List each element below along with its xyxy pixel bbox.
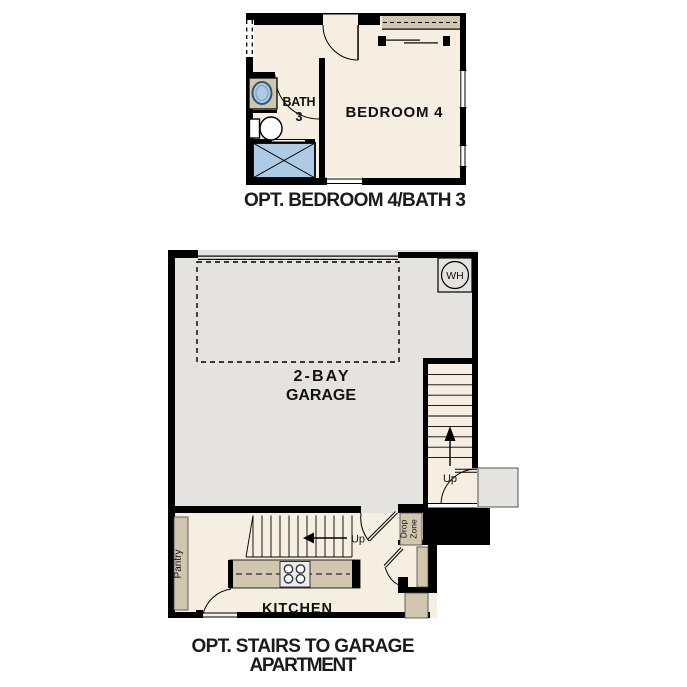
- drop-zone: Drop Zone: [399, 513, 423, 545]
- floor-plan-canvas: BATH 3 BEDROOM 4 OPT. BEDROOM 4/BATH 3 W…: [0, 0, 687, 687]
- kitchen-label: KITCHEN: [262, 601, 332, 617]
- garage-label-line2: GARAGE: [286, 387, 356, 404]
- caption-opt-stairs-line2: APARTMENT: [250, 655, 357, 676]
- stair-landing: Up: [425, 468, 518, 509]
- toilet: [250, 117, 283, 140]
- drop-zone-label-line1: Drop: [399, 520, 409, 539]
- cabinet-right-strip: [417, 547, 428, 587]
- pantry-cabinet: Pantry: [173, 517, 188, 610]
- wall-mass-drop-zone: [423, 508, 490, 545]
- shower-entry: [272, 140, 305, 142]
- caption-opt-stairs-line1: OPT. STAIRS TO GARAGE: [192, 636, 415, 657]
- window-bottom: [326, 177, 363, 186]
- bath-number-label: 3: [296, 110, 303, 124]
- garage-label-line1: 2-BAY: [294, 368, 349, 385]
- window-right-upper: [459, 70, 467, 108]
- window-left-dashed: [245, 20, 254, 57]
- drop-zone-label-line2: Zone: [409, 519, 419, 539]
- bedroom4-label: BEDROOM 4: [346, 104, 444, 121]
- kitchen-counter: [228, 560, 360, 588]
- pantry-label: Pantry: [173, 550, 184, 579]
- stove: [280, 562, 310, 588]
- exterior-stoop: [478, 468, 518, 507]
- water-heater: WH: [438, 258, 472, 292]
- bath-label: BATH: [283, 95, 316, 109]
- closet-shelf: [382, 16, 466, 30]
- bath-vanity: [249, 78, 277, 109]
- plan-opt-stairs-garage-apartment: WH: [168, 250, 518, 676]
- shower: [253, 143, 315, 178]
- window-right-lower: [459, 145, 467, 167]
- cabinet-bottom-right: [405, 593, 428, 618]
- stairs-to-apartment: [428, 364, 472, 468]
- up-label-landing: Up: [443, 473, 457, 485]
- up-label-kitchen: Up: [351, 534, 365, 546]
- plan-opt-bedroom4-bath3: BATH 3 BEDROOM 4 OPT. BEDROOM 4/BATH 3: [244, 13, 467, 211]
- caption-opt-bedroom4-bath3: OPT. BEDROOM 4/BATH 3: [244, 190, 466, 211]
- water-heater-label: WH: [446, 270, 464, 282]
